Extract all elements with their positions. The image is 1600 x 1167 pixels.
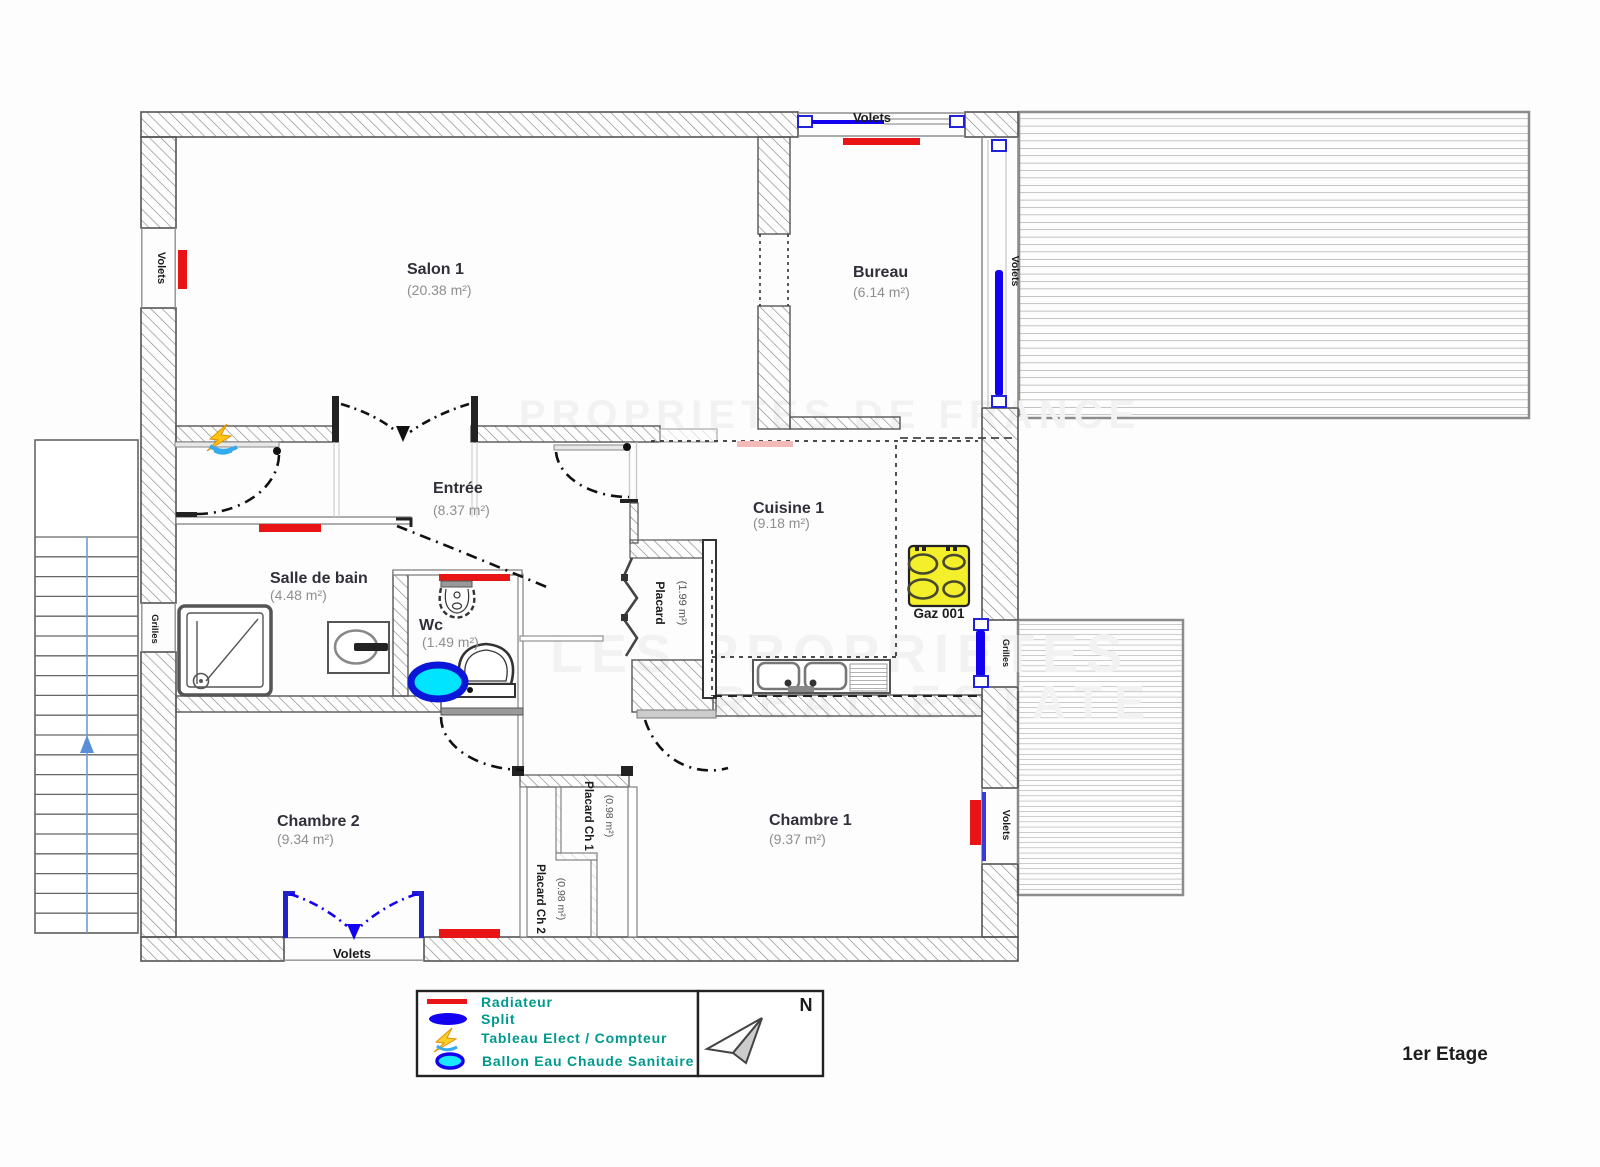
svg-text:Placard Ch 1: Placard Ch 1 bbox=[582, 781, 594, 851]
svg-text:(8.37 m²): (8.37 m²) bbox=[433, 502, 490, 518]
svg-text:Placard Ch 2: Placard Ch 2 bbox=[534, 864, 546, 934]
svg-text:(9.18 m²): (9.18 m²) bbox=[753, 515, 810, 531]
svg-text:Split: Split bbox=[481, 1011, 515, 1027]
svg-text:(1.49 m²): (1.49 m²) bbox=[422, 634, 479, 650]
svg-text:Ballon Eau Chaude Sanitaire: Ballon Eau Chaude Sanitaire bbox=[482, 1053, 694, 1069]
svg-text:1er Etage: 1er Etage bbox=[1402, 1044, 1488, 1065]
svg-text:Volets: Volets bbox=[1009, 256, 1021, 287]
svg-text:Grilles: Grilles bbox=[149, 614, 160, 644]
svg-text:Radiateur: Radiateur bbox=[481, 994, 553, 1010]
svg-text:Salon 1: Salon 1 bbox=[407, 261, 464, 278]
svg-text:(0.98 m²): (0.98 m²) bbox=[555, 878, 567, 921]
svg-text:Placard: Placard bbox=[653, 581, 667, 624]
svg-text:Entrée: Entrée bbox=[433, 480, 483, 497]
svg-text:Chambre 1: Chambre 1 bbox=[769, 812, 852, 829]
svg-text:Chambre 2: Chambre 2 bbox=[277, 813, 360, 830]
svg-text:Volets: Volets bbox=[333, 946, 371, 961]
svg-text:Bureau: Bureau bbox=[853, 264, 908, 281]
svg-text:(20.38 m²): (20.38 m²) bbox=[407, 282, 472, 298]
svg-text:Volets: Volets bbox=[853, 110, 891, 125]
svg-text:(9.34 m²): (9.34 m²) bbox=[277, 831, 334, 847]
svg-text:Volets: Volets bbox=[155, 252, 167, 284]
svg-text:(6.14 m²): (6.14 m²) bbox=[853, 284, 910, 300]
svg-text:(1.99 m²): (1.99 m²) bbox=[676, 581, 688, 626]
svg-text:(4.48 m²): (4.48 m²) bbox=[270, 587, 327, 603]
svg-text:Gaz 001: Gaz 001 bbox=[913, 606, 965, 621]
svg-text:Grilles: Grilles bbox=[1001, 639, 1011, 667]
svg-text:(0.98 m²): (0.98 m²) bbox=[603, 795, 615, 838]
svg-text:Volets: Volets bbox=[1000, 810, 1012, 841]
svg-text:Tableau Elect / Compteur: Tableau Elect / Compteur bbox=[481, 1030, 667, 1046]
svg-text:Salle de bain: Salle de bain bbox=[270, 570, 368, 587]
svg-text:Wc: Wc bbox=[419, 617, 443, 634]
svg-text:(9.37 m²): (9.37 m²) bbox=[769, 831, 826, 847]
svg-text:N: N bbox=[800, 995, 813, 1015]
